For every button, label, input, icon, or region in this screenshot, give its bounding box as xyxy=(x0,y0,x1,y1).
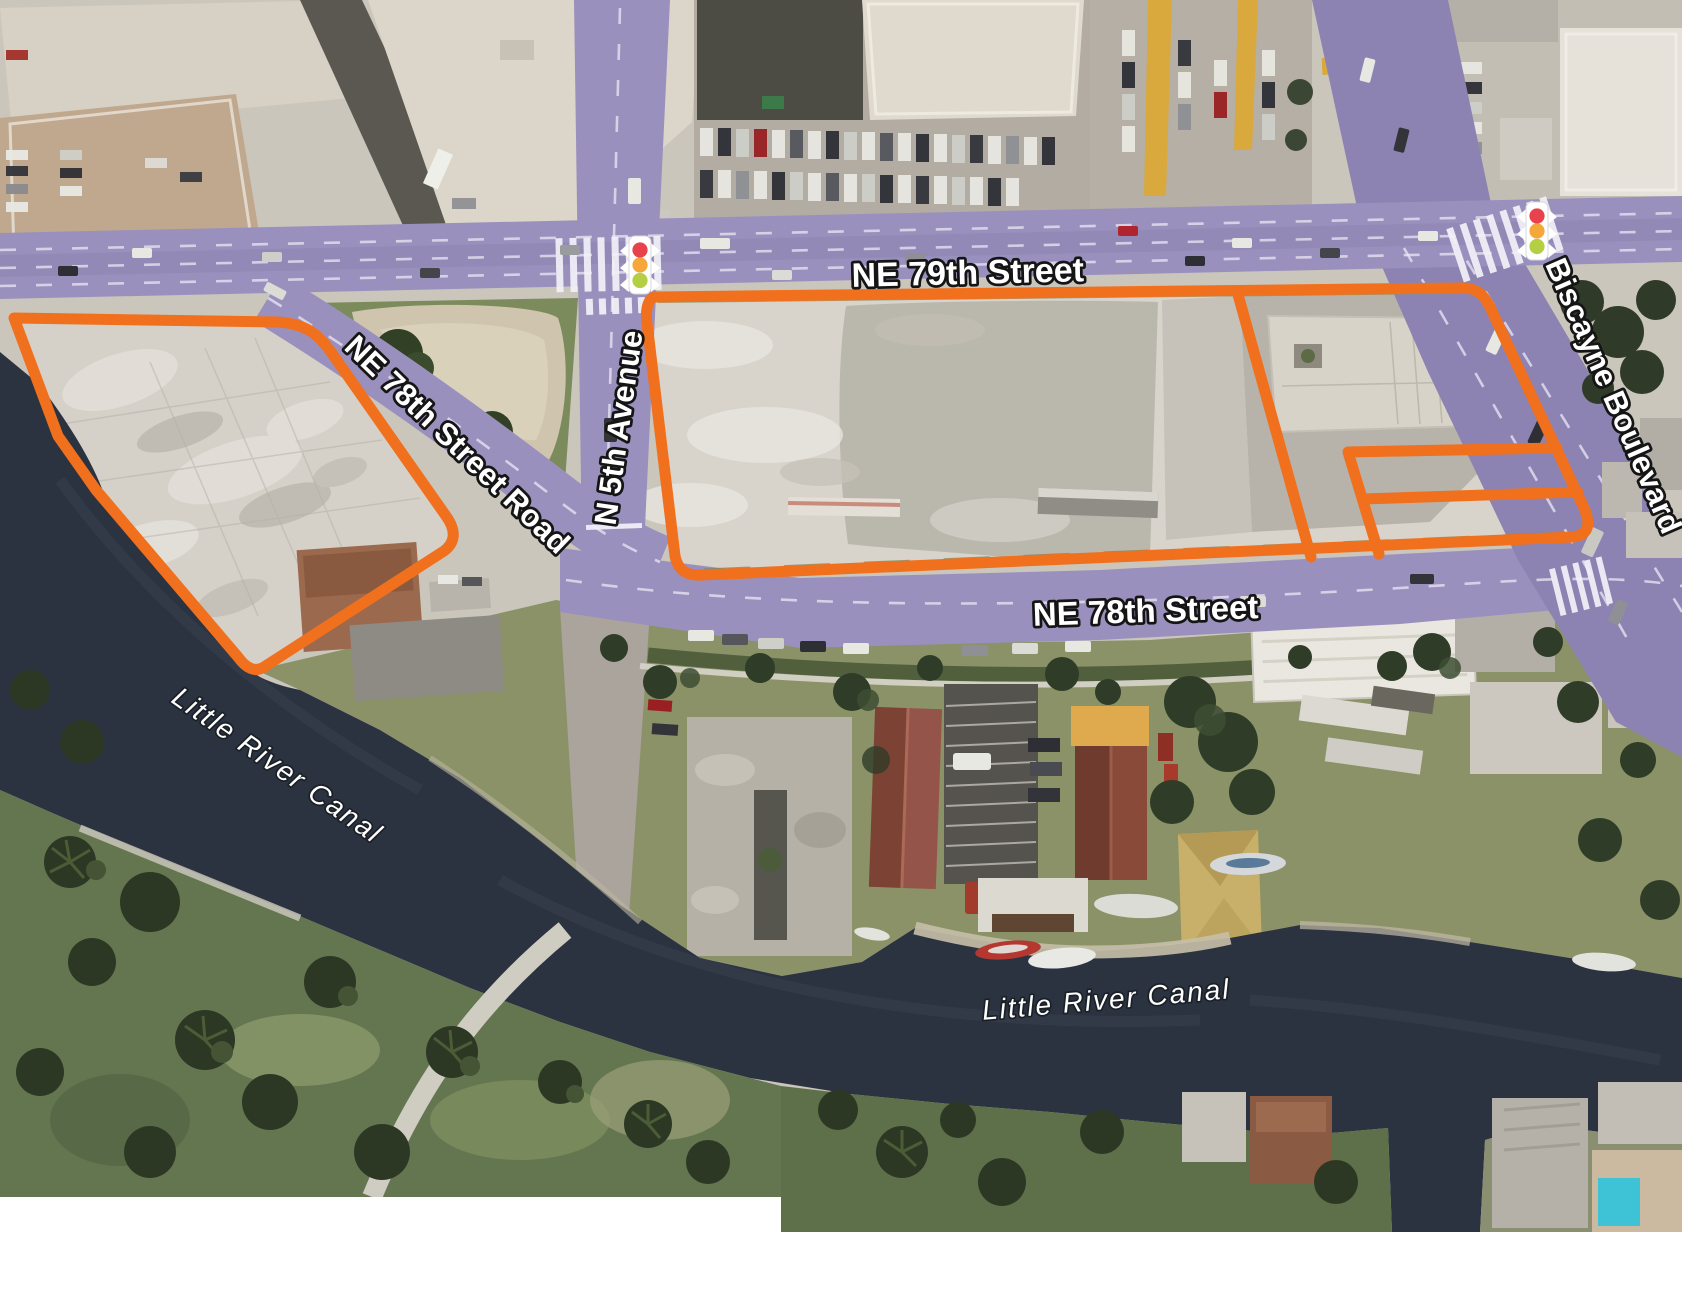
image-margin-right xyxy=(781,1232,1682,1300)
map-canvas: NE 79th Street NE 78th Street NE 78th St… xyxy=(0,0,1682,1300)
parcel-divider-lower xyxy=(1363,492,1578,499)
image-margin-left xyxy=(0,1197,781,1300)
label-ne79-street: NE 79th Street xyxy=(851,251,1084,295)
label-ne78-street: NE 78th Street xyxy=(1032,588,1259,633)
aerial-site-map: NE 79th Street NE 78th Street NE 78th St… xyxy=(0,0,1682,1300)
